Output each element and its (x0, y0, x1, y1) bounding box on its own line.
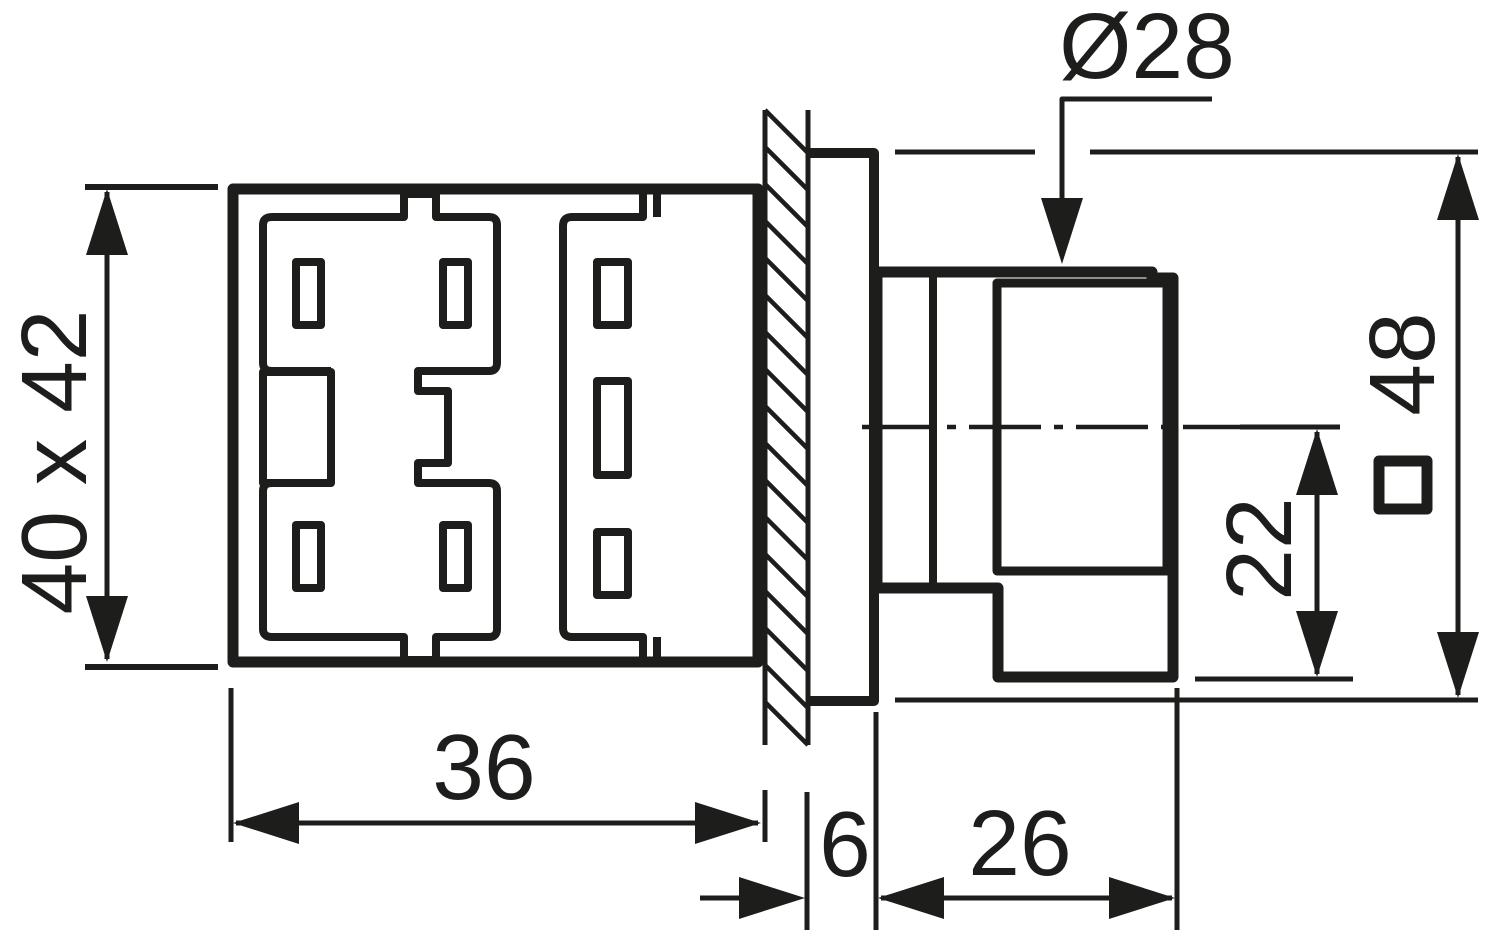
terminal-slot (597, 262, 628, 325)
dim-label-rear-depth: 36 (432, 715, 535, 819)
terminal-slot (296, 525, 321, 588)
dim-rear-cross-section: 40 x 42 (2, 187, 218, 667)
arrow-left-icon (233, 802, 299, 844)
technical-drawing-canvas: 40 x 42 36 6 26 22 (0, 0, 1500, 939)
terminal-slot (597, 381, 628, 475)
arrow-up-icon (1437, 154, 1479, 220)
dim-label-rear-cross-section: 40 x 42 (2, 309, 106, 614)
dim-label-front-depth: 26 (968, 791, 1071, 895)
drawing-page: 40 x 42 36 6 26 22 (0, 0, 1500, 939)
arrow-right-icon (695, 802, 761, 844)
dim-rear-depth: 36 (231, 688, 765, 844)
dim-front-depth: 26 (878, 688, 1177, 930)
arrow-right-icon (1109, 877, 1175, 919)
module-spacer-box (263, 372, 331, 483)
panel-wall (765, 110, 808, 745)
dim-label-bezel-square: 48 (1350, 312, 1454, 415)
terminal-slot (597, 532, 628, 595)
terminal-slot (296, 262, 321, 325)
square-section-symbol-icon (1379, 461, 1427, 509)
arrow-up-icon (86, 189, 128, 255)
arrow-down-icon (1041, 198, 1083, 264)
arrow-left-icon (878, 877, 944, 919)
dim-button-offset: 22 (1195, 429, 1353, 679)
terminal-slot (443, 262, 468, 325)
terminal-slot (443, 525, 468, 588)
dim-label-hole-diameter: Ø28 (1059, 0, 1235, 98)
dim-hole-diameter: Ø28 (1041, 0, 1235, 264)
module-latch-key (418, 371, 490, 483)
panel-hatch-lines (765, 110, 808, 745)
dim-label-button-offset: 22 (1207, 497, 1311, 600)
arrow-right-icon (739, 877, 805, 919)
arrow-down-icon (1296, 611, 1338, 677)
rear-view (233, 189, 758, 662)
arrow-up-icon (1296, 429, 1338, 495)
dim-label-bezel-thickness: 6 (819, 792, 871, 896)
arrow-down-icon (1437, 632, 1479, 698)
